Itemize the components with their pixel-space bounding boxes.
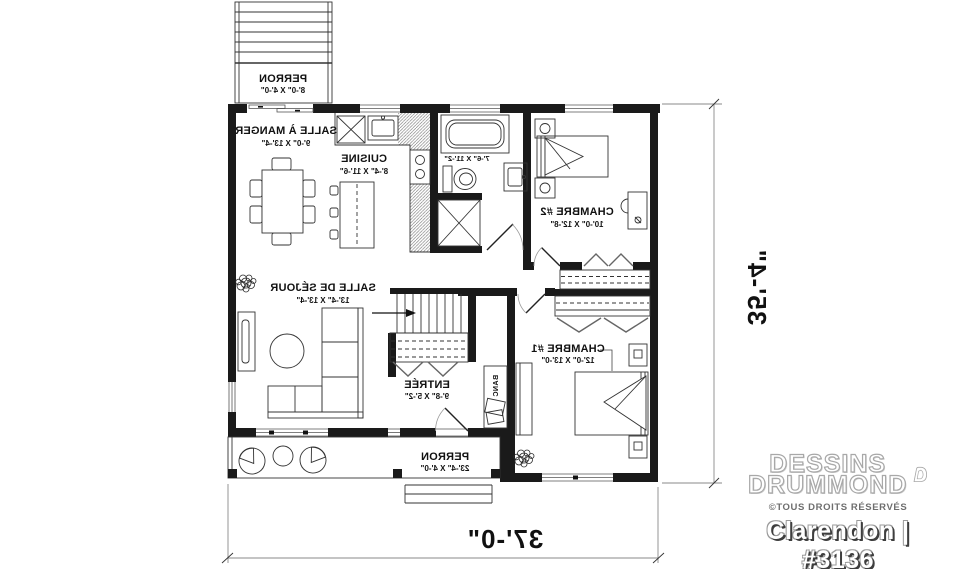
- dims-perron-top: 8'-0" X 4'-0": [261, 86, 306, 95]
- bathroom: [438, 115, 527, 250]
- window-living-side: [228, 382, 236, 412]
- label-chambre-2: CHAMBRE #2: [540, 206, 614, 218]
- stove-icon: [410, 150, 430, 184]
- dims-entree: 9'-8" X 5'-2": [405, 392, 450, 401]
- bed2-icon: [537, 136, 608, 177]
- bedroom-2: [534, 119, 647, 266]
- window-kitchen: [360, 104, 400, 113]
- bedroom-1: [514, 294, 648, 467]
- label-chambre-1: CHAMBRE #1: [531, 343, 605, 355]
- front-door-opening: [436, 429, 468, 436]
- label-entree: ENTRÉE: [404, 378, 450, 391]
- porch-steps: [405, 485, 492, 503]
- window-bedroom1: [542, 473, 613, 482]
- dims-salle-de-bain: 7'-6" X 11'-2": [444, 154, 490, 163]
- overall-width-dimension: 37'-0": [467, 524, 544, 554]
- floor-plan-page: PERRON 8'-0" X 4'-0" SALLE À MANGER 9'-0…: [0, 0, 960, 569]
- watermark: DESSINS DRUMMOND ©TOUS DROITS RÉSERVÉS C…: [748, 450, 928, 569]
- bathtub-icon: [441, 115, 509, 153]
- dims-salle-a-manger: 9'-0" X 13'-4": [261, 139, 310, 148]
- window-living-front: [256, 428, 328, 437]
- label-salle-de-sejour: SALLE DE SÉJOUR: [270, 281, 376, 294]
- dims-chambre-2: 10'-0" X 12'-8": [550, 220, 603, 229]
- bedroom2-door: [534, 248, 560, 266]
- bedroom1-door: [518, 294, 545, 313]
- bedroom1-closet-bifold-doors: [557, 318, 648, 332]
- dishwasher-icon: [337, 116, 365, 143]
- dims-salle-de-sejour: 13'-4" X 13'-4": [296, 296, 349, 305]
- front-door: [435, 408, 468, 431]
- kitchen-sink-icon: [368, 116, 398, 140]
- coffee-table-icon: [270, 334, 304, 368]
- window-bedroom2: [565, 104, 613, 113]
- bathroom-door: [487, 224, 523, 250]
- tv-console-icon: [238, 312, 255, 371]
- kitchen-island: [330, 182, 374, 248]
- entry-closet-bifold-doors: [393, 362, 458, 376]
- stairs-direction-arrow: [372, 309, 416, 317]
- window-bathroom: [450, 104, 500, 113]
- dresser-icon: [516, 363, 532, 435]
- bedroom2-closet-bifold-doors: [584, 254, 633, 266]
- label-cuisine: CUISINE: [341, 153, 387, 165]
- dims-perron-bottom: 23'-4" X 4'-0": [420, 464, 469, 473]
- under-stair-closet: [390, 333, 468, 362]
- brand-drummond: DRUMMOND: [748, 475, 907, 497]
- overall-depth-dimension: 35'-4": [742, 249, 772, 326]
- dims-chambre-1: 12'-0" X 13'-0": [541, 356, 594, 365]
- patio-door: [247, 104, 313, 113]
- desk2-icon: [621, 192, 647, 229]
- bed1-icon: [575, 372, 648, 435]
- dims-cuisine: 8'-4" X 11'-6": [340, 167, 389, 176]
- label-banc: BANC: [493, 375, 500, 397]
- window-entry-side: [388, 428, 400, 437]
- kitchen: [330, 113, 430, 252]
- brand-logo: DESSINS DRUMMOND: [748, 450, 928, 500]
- sectional-sofa-icon: [268, 308, 363, 418]
- copyright-text: ©TOUS DROITS RÉSERVÉS: [748, 502, 928, 513]
- stairs: [372, 288, 468, 376]
- label-perron-bottom: PERRON: [421, 451, 469, 463]
- drummond-d-logo-icon: [913, 450, 928, 500]
- label-salle-a-manger: SALLE À MANGER: [235, 124, 337, 137]
- plan-name: Clarendon | #3136: [748, 517, 928, 569]
- shower-icon: [438, 200, 480, 246]
- dining-room: [250, 158, 315, 245]
- dining-table-icon: [262, 170, 303, 233]
- toilet-icon: [443, 166, 476, 192]
- label-perron-top: PERRON: [259, 73, 307, 85]
